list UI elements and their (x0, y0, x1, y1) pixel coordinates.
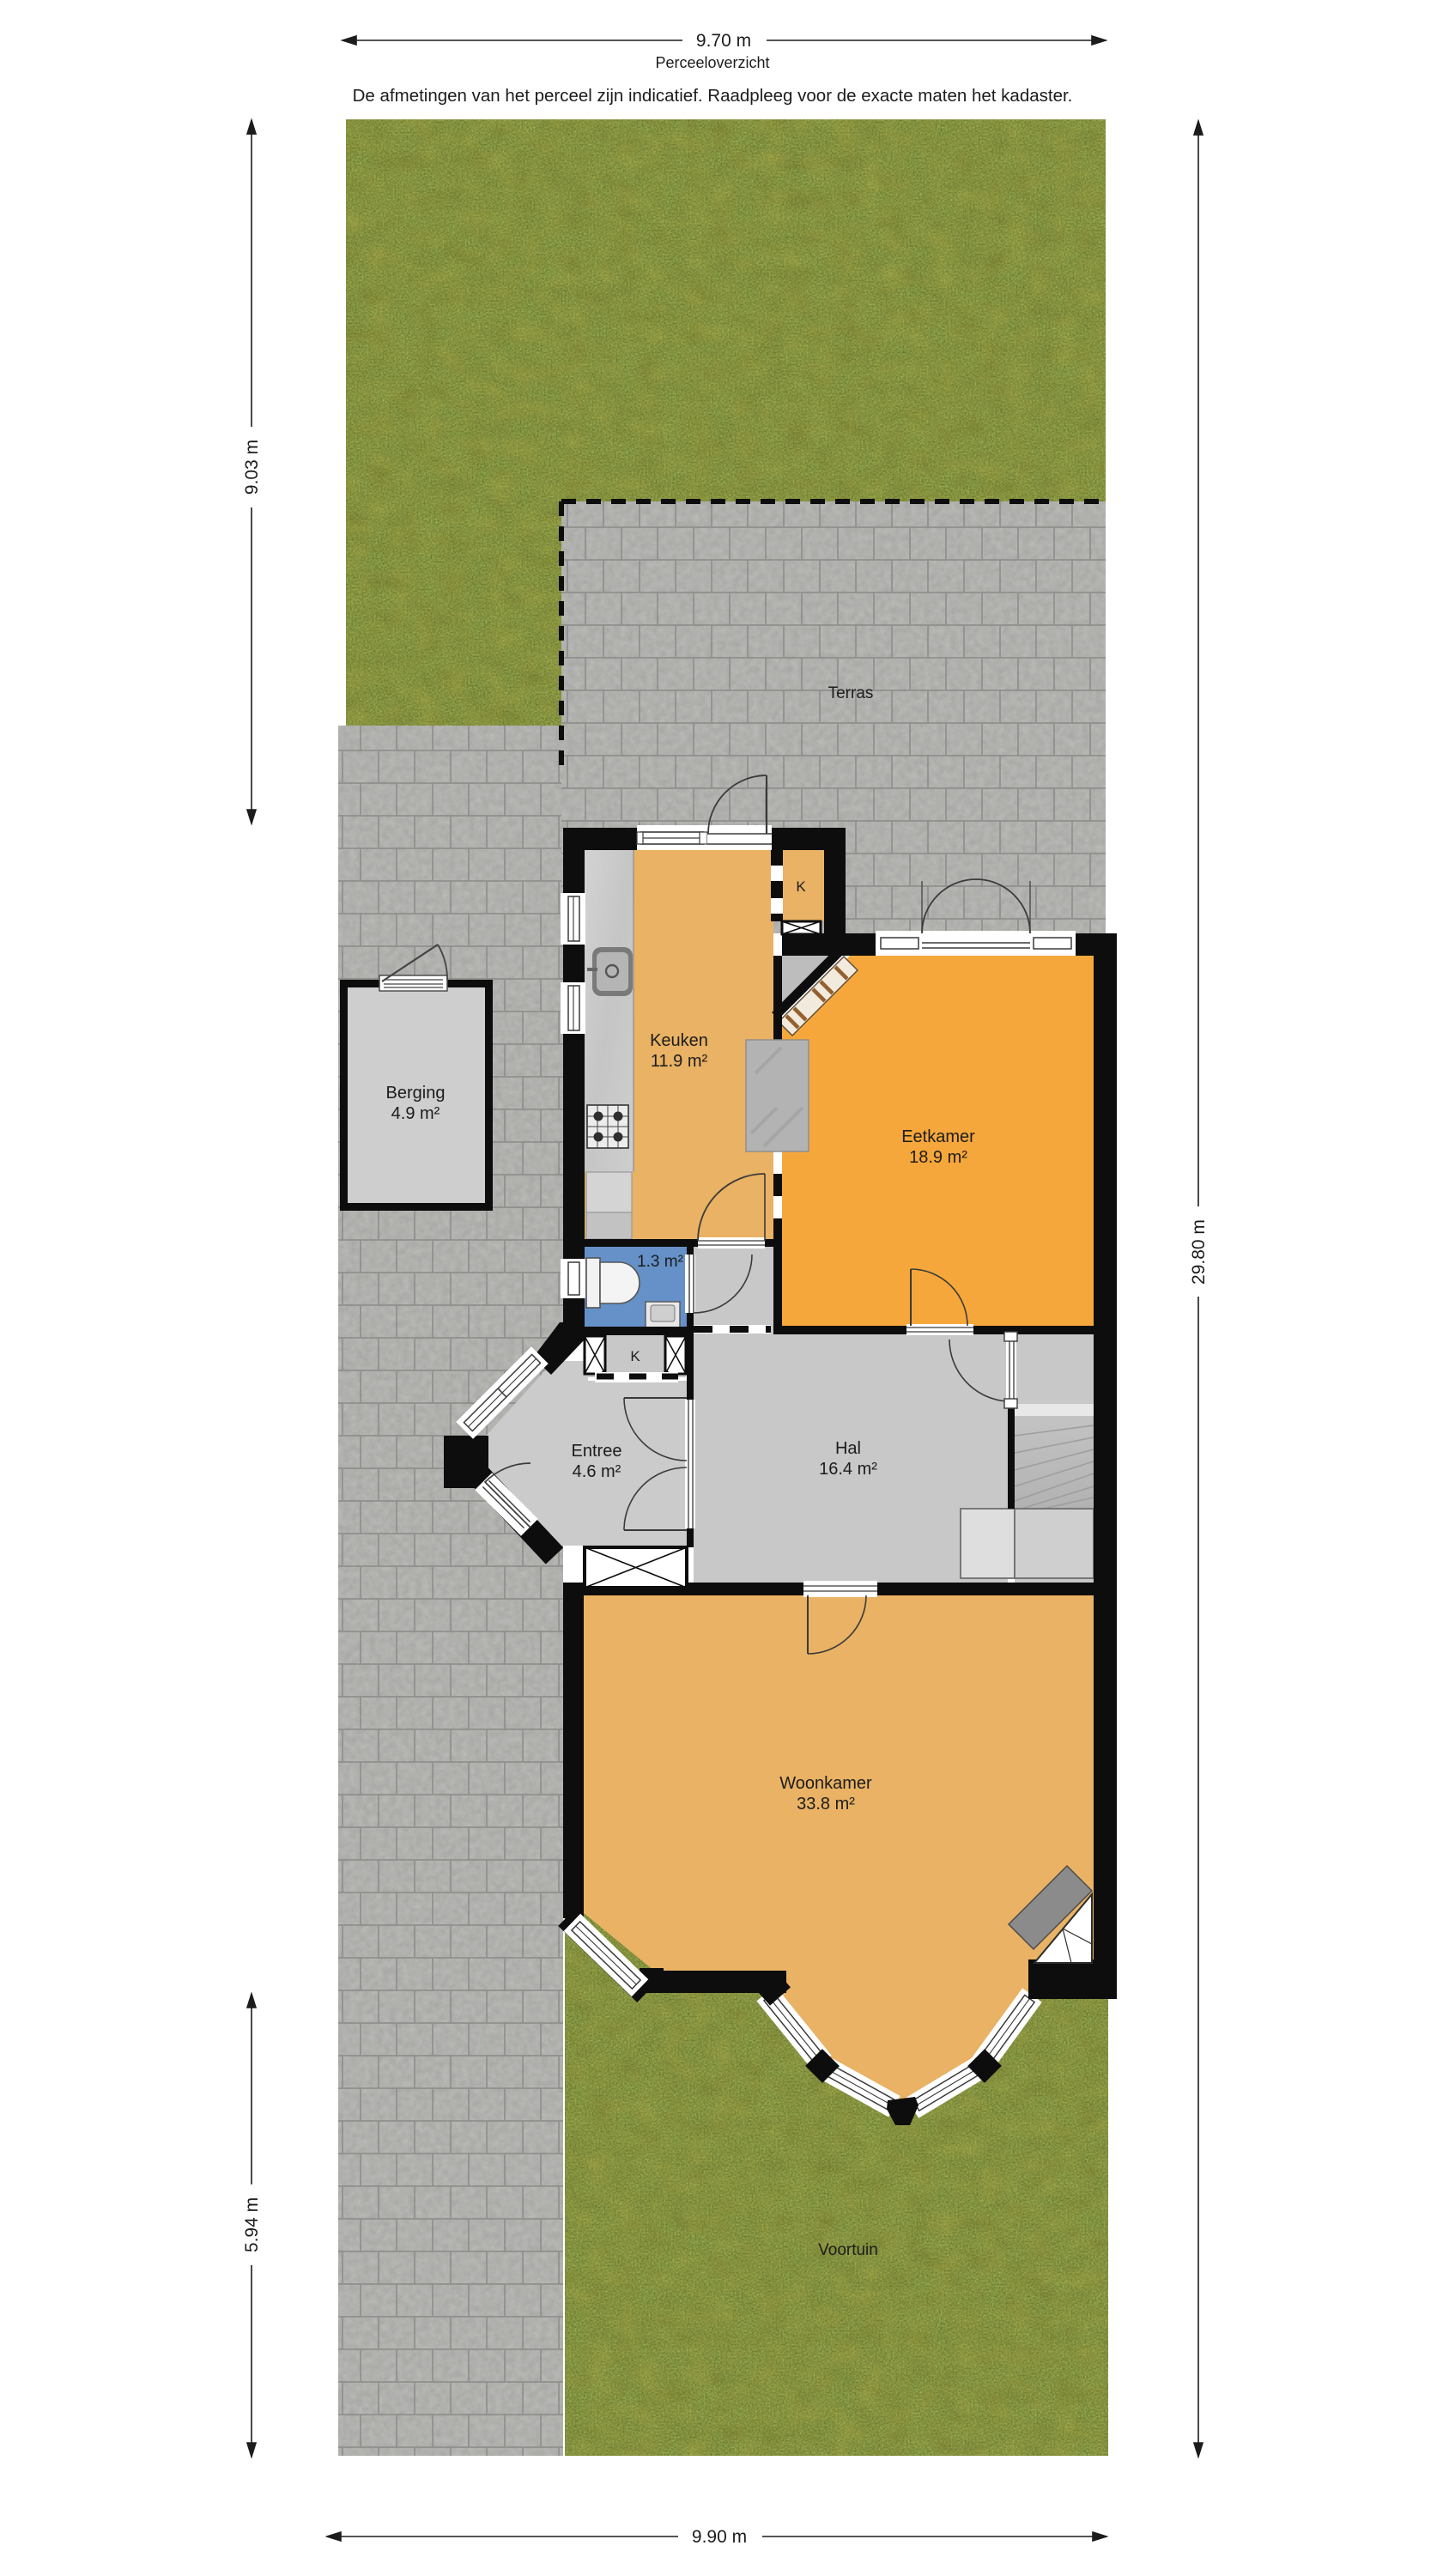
svg-text:Entree: Entree (572, 1442, 622, 1461)
svg-text:K: K (630, 1348, 640, 1364)
svg-text:18.9 m²: 18.9 m² (909, 1148, 967, 1167)
svg-text:K: K (796, 878, 806, 895)
svg-text:4.6 m²: 4.6 m² (573, 1462, 621, 1481)
svg-text:9.03 m: 9.03 m (242, 440, 262, 495)
svg-text:Hal: Hal (835, 1439, 861, 1458)
svg-text:4.9 m²: 4.9 m² (391, 1104, 440, 1123)
svg-text:1.3 m²: 1.3 m² (637, 1253, 683, 1271)
svg-text:16.4 m²: 16.4 m² (819, 1460, 877, 1479)
svg-text:29.80 m: 29.80 m (1189, 1219, 1209, 1285)
svg-text:33.8 m²: 33.8 m² (797, 1795, 855, 1814)
svg-text:Keuken: Keuken (650, 1031, 708, 1050)
svg-text:Voortuin: Voortuin (818, 2241, 878, 2259)
svg-text:Perceeloverzicht: Perceeloverzicht (655, 54, 769, 71)
svg-text:11.9 m²: 11.9 m² (651, 1052, 708, 1071)
svg-text:Terras: Terras (828, 684, 874, 702)
svg-text:Woonkamer: Woonkamer (779, 1774, 872, 1793)
svg-text:5.94 m: 5.94 m (242, 2197, 262, 2252)
svg-text:Berging: Berging (386, 1084, 446, 1103)
svg-text:9.90 m: 9.90 m (692, 2527, 747, 2547)
svg-text:Eetkamer: Eetkamer (901, 1127, 975, 1146)
svg-text:9.70 m: 9.70 m (696, 31, 751, 51)
svg-text:De afmetingen van het perceel: De afmetingen van het perceel zijn indic… (353, 86, 1073, 106)
